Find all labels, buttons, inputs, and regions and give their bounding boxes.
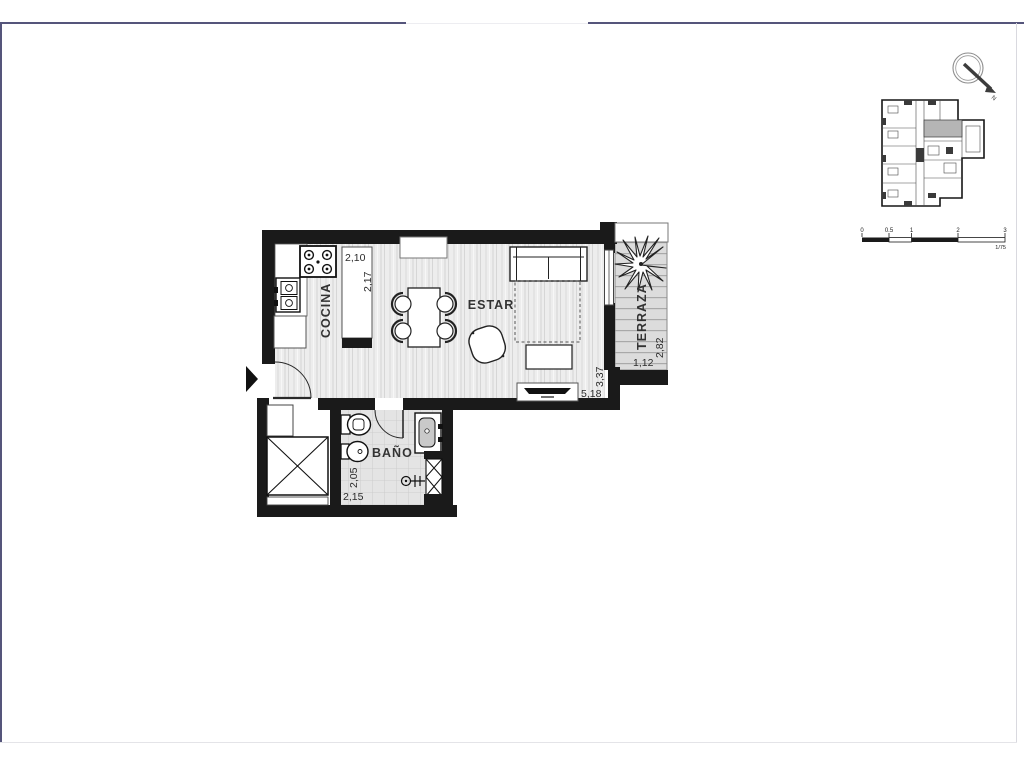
scale-bar: 0 0.5 1 2 3 1/75 [860, 228, 1007, 251]
shaft-ledge [267, 497, 328, 505]
frame-top-right [588, 22, 1024, 24]
scale-tick-0: 0 [860, 228, 864, 234]
bathroom-duct [424, 451, 443, 505]
floor-plan-drawing: COCINA ESTAR BAÑO TERRAZA 2,10 2,17 5,18… [0, 0, 1024, 768]
shaft-x-box [267, 437, 328, 495]
shaft-block [267, 405, 328, 505]
room-label-terraza: TERRAZA [635, 283, 649, 350]
key-plan [882, 100, 984, 206]
stove-icon [300, 246, 336, 277]
toilet-icon [341, 414, 371, 435]
dim-island-width: 2,10 [345, 252, 366, 264]
kitchen-sink-icon [274, 278, 300, 312]
frame-top-gap [406, 23, 588, 24]
kitchen-cabinet [274, 316, 306, 348]
frame-bottom [0, 742, 1017, 743]
scale-tick-3: 3 [1003, 228, 1007, 234]
scale-tick-2: 2 [956, 228, 960, 234]
tv-unit [517, 383, 578, 401]
bidet-icon [341, 442, 368, 462]
page: COCINA ESTAR BAÑO TERRAZA 2,10 2,17 5,18… [0, 0, 1024, 768]
side-table [526, 345, 572, 369]
dim-terraza-width: 1,12 [633, 357, 654, 369]
washbasin-icon [415, 413, 443, 453]
floor-plan: COCINA ESTAR BAÑO TERRAZA 2,10 2,17 5,18… [246, 222, 668, 517]
frame-left [0, 22, 2, 743]
room-label-cocina: COCINA [319, 283, 333, 338]
dining-table [408, 288, 440, 347]
dim-terraza-height: 2,82 [654, 337, 666, 358]
dim-estar-width: 5,18 [581, 388, 602, 400]
room-label-bano: BAÑO [372, 445, 413, 460]
north-compass-icon: N [953, 53, 997, 102]
room-label-estar: ESTAR [468, 298, 514, 312]
scale-tick-05: 0.5 [885, 228, 894, 234]
window [400, 237, 447, 258]
frame-right [1016, 23, 1017, 743]
terrace-ledge [615, 223, 668, 242]
sofa [510, 247, 587, 281]
entry-arrow-icon [246, 366, 258, 392]
dim-bano-height: 2,05 [348, 467, 360, 488]
key-plan-unit-highlight [924, 120, 962, 137]
dim-bano-width: 2,15 [343, 491, 364, 503]
closet [267, 405, 293, 436]
dim-island-length: 2,17 [362, 271, 374, 292]
north-letter: N [990, 95, 997, 102]
terrace-glass-door [605, 250, 614, 305]
scale-tick-1: 1 [910, 228, 914, 234]
dim-estar-height: 3,37 [594, 366, 606, 387]
scale-ratio: 1/75 [995, 245, 1006, 251]
frame-top-left [0, 22, 406, 24]
